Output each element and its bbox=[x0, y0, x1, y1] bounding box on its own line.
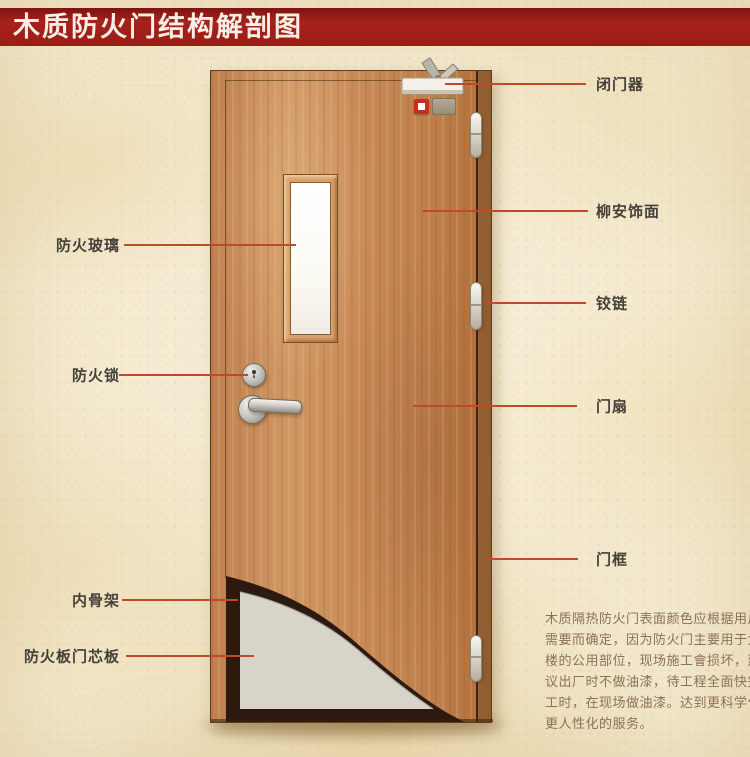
label-hinge: 铰链 bbox=[596, 293, 628, 314]
title-banner: 木质防火门结构解剖图 bbox=[0, 8, 750, 46]
description-line: 木质隔热防火门表面颜色应根据用户 bbox=[545, 608, 745, 629]
hinge-top bbox=[470, 112, 482, 158]
callout-line-fire-lock bbox=[119, 374, 248, 376]
door-groove-left bbox=[225, 80, 226, 578]
label-inner-skeleton: 内骨架 bbox=[72, 590, 120, 611]
description-line: 需要而确定，因为防火门主要用于大 bbox=[545, 629, 745, 650]
callout-line-door-leaf bbox=[413, 405, 577, 407]
callout-line-hinge bbox=[484, 302, 586, 304]
description-line: 更人性化的服务。 bbox=[545, 713, 745, 734]
label-lauan-veneer: 柳安饰面 bbox=[596, 201, 660, 222]
callout-line-door-closer bbox=[445, 83, 586, 85]
description-paragraph: 木质隔热防火门表面颜色应根据用户 需要而确定，因为防火门主要用于大 楼的公用部位… bbox=[545, 608, 745, 734]
description-line: 楼的公用部位，现场施工會损坏，建 bbox=[545, 650, 745, 671]
fire-glass-pane bbox=[290, 182, 331, 335]
diagram-canvas: 木质防火门结构解剖图 bbox=[0, 0, 750, 757]
fire-board-core-region bbox=[240, 592, 433, 709]
page-title: 木质防火门结构解剖图 bbox=[0, 8, 750, 46]
alarm-indicator bbox=[414, 99, 429, 114]
label-door-frame: 门框 bbox=[596, 549, 628, 570]
callout-line-lauan-veneer bbox=[423, 210, 588, 212]
callout-line-fire-board-core bbox=[126, 655, 254, 657]
label-door-closer: 闭门器 bbox=[596, 74, 644, 95]
leaf-frame-joint bbox=[476, 71, 478, 722]
metal-plate bbox=[432, 98, 456, 115]
callout-line-fire-glass bbox=[124, 244, 296, 246]
description-line: 工时，在现场做油漆。达到更科学化 bbox=[545, 692, 745, 713]
door-bottom-edge bbox=[211, 719, 493, 722]
hinge-bottom bbox=[470, 635, 482, 682]
label-fire-lock: 防火锁 bbox=[72, 365, 120, 386]
callout-line-door-frame bbox=[486, 558, 578, 560]
door-closer bbox=[395, 56, 475, 98]
label-fire-board-core: 防火板门芯板 bbox=[24, 646, 120, 667]
description-line: 议出厂时不做油漆，待工程全面快完 bbox=[545, 671, 745, 692]
callout-line-inner-skeleton bbox=[122, 599, 238, 601]
label-fire-glass: 防火玻璃 bbox=[56, 235, 120, 256]
hinge-middle bbox=[470, 282, 482, 330]
door-handle bbox=[248, 398, 303, 415]
vision-panel-frame bbox=[283, 174, 338, 343]
label-door-leaf: 门扇 bbox=[596, 396, 628, 417]
